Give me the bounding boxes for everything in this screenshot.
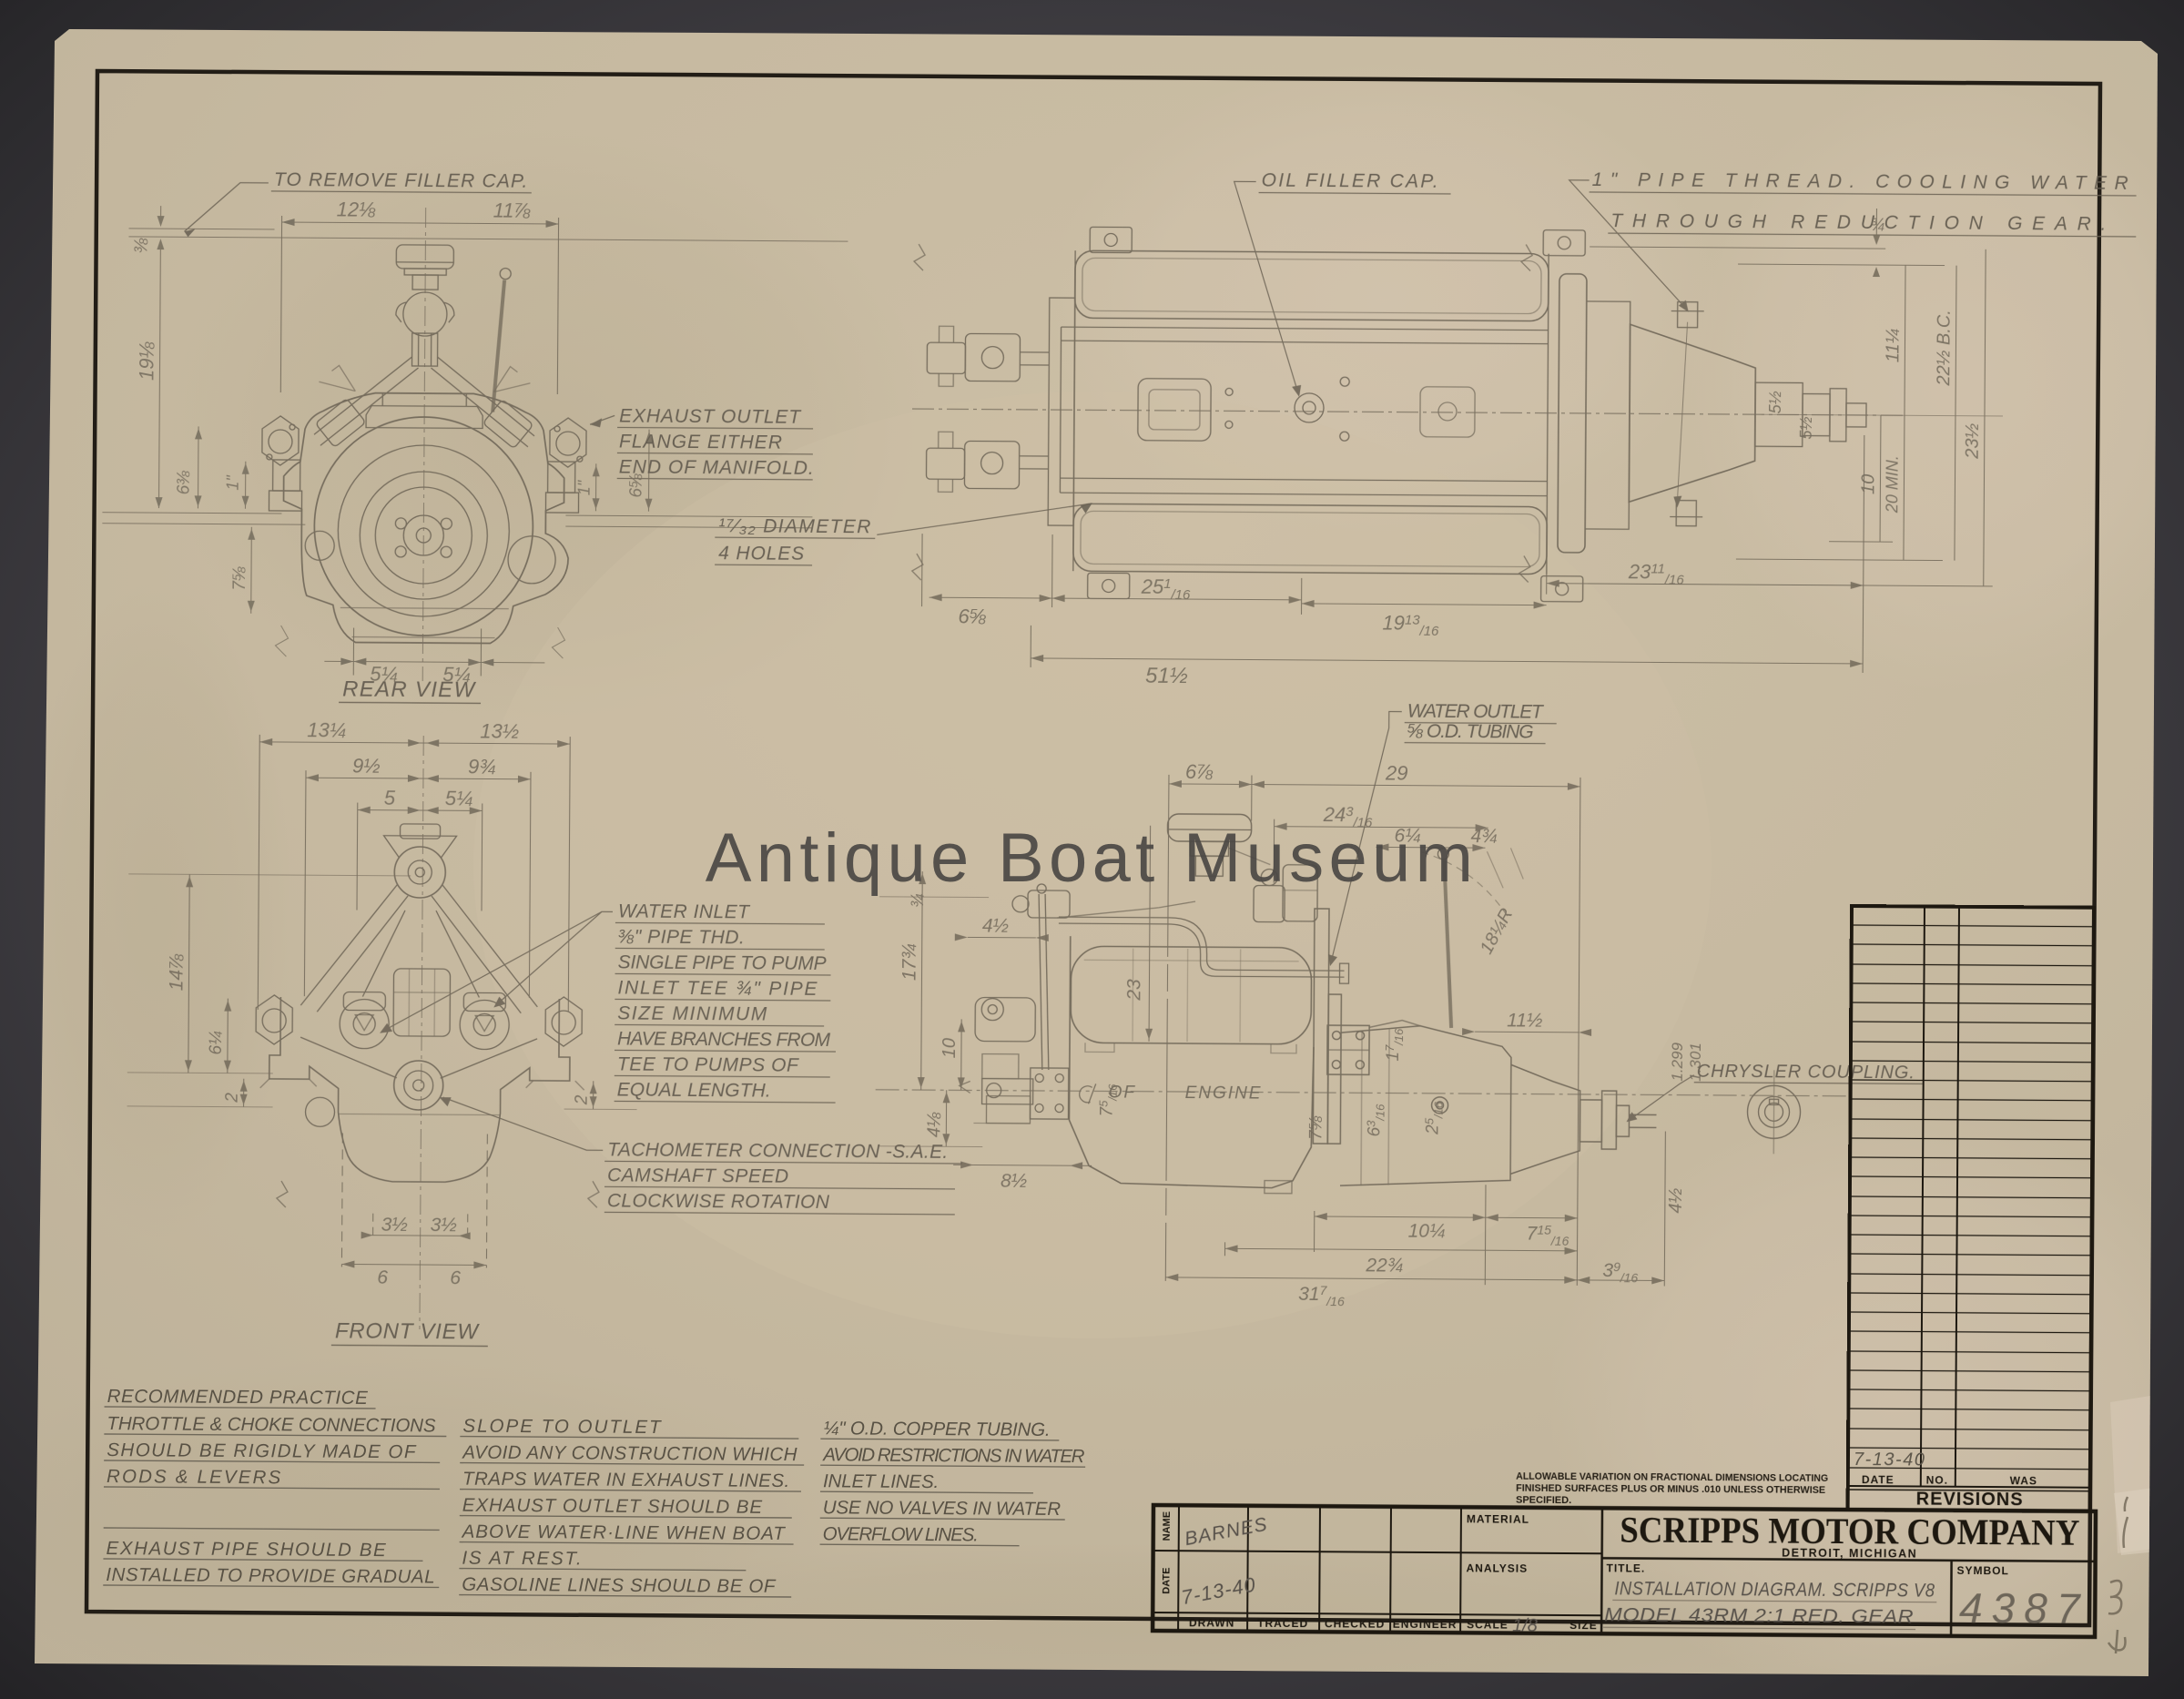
svg-text:ABOVE WATER·LINE WHEN BOAT: ABOVE WATER·LINE WHEN BOAT: [461, 1521, 787, 1544]
svg-text:9½: 9½: [352, 755, 381, 778]
svg-text:REVISIONS: REVISIONS: [1916, 1489, 2024, 1510]
svg-text:¼" O.D. COPPER TUBING.: ¼" O.D. COPPER TUBING.: [823, 1418, 1051, 1440]
svg-text:INSTALLED TO PROVIDE GRADUAL: INSTALLED TO PROVIDE GRADUAL: [106, 1564, 435, 1587]
svg-text:1.299: 1.299: [1669, 1042, 1686, 1081]
svg-text:23: 23: [1123, 979, 1144, 1002]
svg-text:DRAWN: DRAWN: [1189, 1616, 1234, 1629]
svg-text:2: 2: [573, 1094, 592, 1105]
svg-text:DATE: DATE: [1862, 1473, 1894, 1486]
svg-text:RECOMMENDED PRACTICE: RECOMMENDED PRACTICE: [107, 1386, 369, 1409]
svg-text:3½: 3½: [381, 1215, 408, 1236]
svg-text:EXHAUST PIPE SHOULD BE: EXHAUST PIPE SHOULD BE: [106, 1538, 386, 1561]
svg-text:SINGLE PIPE TO PUMP: SINGLE PIPE TO PUMP: [618, 951, 828, 974]
svg-text:SCALE: SCALE: [1467, 1618, 1508, 1631]
svg-text:TACHOMETER CONNECTION -S.A.E.: TACHOMETER CONNECTION -S.A.E.: [607, 1139, 949, 1162]
svg-text:INSTALLATION DIAGRAM. SCRIPP: INSTALLATION DIAGRAM. SCRIPPS V8: [1614, 1578, 1935, 1601]
svg-text:INLET TEE ¾" PIPE: INLET TEE ¾" PIPE: [617, 977, 818, 999]
svg-text:MODEL 43RM 2:1 RED. GEAR: MODEL 43RM 2:1 RED. GEAR: [1604, 1604, 1914, 1627]
svg-text:CLOCKWISE ROTATION: CLOCKWISE ROTATION: [607, 1190, 830, 1213]
svg-text:2: 2: [223, 1093, 242, 1104]
svg-text:5: 5: [384, 787, 396, 809]
svg-text:22¾: 22¾: [1365, 1255, 1403, 1276]
svg-text:11½: 11½: [1507, 1010, 1542, 1031]
svg-text:5¼: 5¼: [445, 787, 473, 809]
svg-text:HAVE BRANCHES FROM: HAVE BRANCHES FROM: [617, 1028, 831, 1051]
svg-text:13¼: 13¼: [307, 718, 346, 741]
svg-text:11⅞: 11⅞: [493, 199, 531, 222]
svg-text:10: 10: [940, 1038, 960, 1058]
svg-text:3½: 3½: [431, 1215, 457, 1236]
svg-text:REAR VIEW: REAR VIEW: [342, 677, 477, 702]
svg-text:4387: 4387: [1959, 1584, 2089, 1633]
svg-text:12⅛: 12⅛: [337, 198, 377, 220]
svg-text:RODS & LEVERS: RODS & LEVERS: [107, 1466, 281, 1488]
svg-text:20 MIN.: 20 MIN.: [1883, 455, 1901, 514]
svg-text:11¼: 11¼: [1883, 329, 1903, 363]
svg-text:FRONT VIEW: FRONT VIEW: [335, 1318, 481, 1344]
svg-text:1": 1": [224, 474, 242, 491]
svg-text:TO REMOVE FILLER CAP.: TO REMOVE FILLER CAP.: [274, 169, 529, 192]
svg-text:SPECIFIED.: SPECIFIED.: [1516, 1495, 1571, 1506]
svg-text:DATE: DATE: [1161, 1567, 1172, 1593]
svg-text:TEE TO PUMPS OF: TEE TO PUMPS OF: [617, 1053, 799, 1075]
svg-text:17¾: 17¾: [899, 943, 919, 981]
svg-text:ANALYSIS: ANALYSIS: [1467, 1562, 1529, 1574]
svg-text:NO.: NO.: [1926, 1474, 1948, 1487]
svg-text:4 HOLES: 4 HOLES: [718, 543, 805, 565]
svg-text:ENGINE: ENGINE: [1185, 1083, 1263, 1104]
svg-text:14⅞: 14⅞: [166, 953, 187, 992]
svg-text:⅜" PIPE THD.: ⅜" PIPE THD.: [618, 926, 746, 948]
svg-text:29: 29: [1385, 761, 1408, 784]
svg-text:OVERFLOW LINES.: OVERFLOW LINES.: [823, 1523, 980, 1545]
svg-text:1.301: 1.301: [1687, 1043, 1704, 1082]
svg-text:AVOID RESTRICTIONS IN WATER: AVOID RESTRICTIONS IN WATER: [821, 1444, 1085, 1467]
svg-text:⅝ O.D. TUBING: ⅝ O.D. TUBING: [1407, 721, 1535, 743]
svg-text:WATER INLET: WATER INLET: [618, 900, 751, 922]
svg-text:THROTTLE & CHOKE CONNECTIONS: THROTTLE & CHOKE CONNECTIONS: [107, 1413, 436, 1436]
svg-text:23½: 23½: [1963, 422, 1983, 459]
svg-text:⅜: ⅜: [131, 238, 151, 253]
svg-text:USE NO VALVES IN WATER: USE NO VALVES IN WATER: [823, 1497, 1062, 1520]
svg-text:TRACED: TRACED: [1257, 1617, 1308, 1630]
svg-text:END OF MANIFOLD.: END OF MANIFOLD.: [619, 456, 815, 478]
svg-text:WAS: WAS: [2010, 1474, 2037, 1487]
svg-text:¹⁷⁄₃₂ DIAMETER: ¹⁷⁄₃₂ DIAMETER: [718, 515, 871, 537]
svg-text:ENGINEER: ENGINEER: [1393, 1618, 1458, 1631]
svg-text:8½: 8½: [1001, 1171, 1027, 1192]
svg-text:4½: 4½: [982, 916, 1009, 937]
svg-text:DETROIT, MICHIGAN: DETROIT, MICHIGAN: [1782, 1547, 1917, 1561]
svg-text:FINISHED SURFACES PLUS OR MINU: FINISHED SURFACES PLUS OR MINUS .010 UNL…: [1516, 1483, 1825, 1496]
svg-text:CAMSHAFT SPEED: CAMSHAFT SPEED: [607, 1165, 789, 1186]
svg-text:6⅞: 6⅞: [1185, 760, 1214, 783]
svg-text:SHOULD BE RIGIDLY MADE OF: SHOULD BE RIGIDLY MADE OF: [107, 1440, 417, 1462]
svg-text:4⅛: 4⅛: [924, 1112, 944, 1137]
svg-text:7⅝: 7⅝: [230, 566, 249, 591]
svg-text:NAME: NAME: [1162, 1511, 1173, 1541]
svg-text:CHECKED: CHECKED: [1325, 1617, 1385, 1630]
svg-text:FLANGE EITHER: FLANGE EITHER: [619, 431, 783, 453]
svg-text:EQUAL LENGTH.: EQUAL LENGTH.: [617, 1079, 772, 1101]
svg-text:SYMBOL: SYMBOL: [1956, 1564, 2008, 1577]
svg-text:AVOID ANY CONSTRUCTION WHIC: AVOID ANY CONSTRUCTION WHICH: [461, 1442, 797, 1465]
svg-text:6⅜: 6⅜: [175, 471, 194, 495]
svg-text:9¾: 9¾: [468, 755, 496, 778]
svg-text:GASOLINE LINES SHOULD BE O: GASOLINE LINES SHOULD BE OF: [462, 1574, 777, 1597]
svg-text:OIL FILLER CAP.: OIL FILLER CAP.: [1262, 170, 1439, 192]
svg-text:SIZE: SIZE: [1569, 1619, 1598, 1632]
svg-text:7-13-40: 7-13-40: [1854, 1450, 1926, 1470]
svg-text:SIZE MINIMUM: SIZE MINIMUM: [617, 1002, 767, 1024]
svg-text:10: 10: [1858, 474, 1878, 494]
svg-text:51½: 51½: [1145, 664, 1188, 688]
svg-text:7⅝: 7⅝: [1306, 1115, 1326, 1140]
svg-text:Antique Boat Museum: Antique Boat Museum: [706, 819, 1478, 897]
svg-text:1/8: 1/8: [1512, 1616, 1538, 1636]
svg-text:13½: 13½: [480, 719, 519, 742]
svg-text:¾: ¾: [1870, 216, 1884, 235]
svg-text:TITLE.: TITLE.: [1607, 1562, 1646, 1574]
svg-text:22½ B.C.: 22½ B.C.: [1934, 310, 1955, 387]
svg-text:4½: 4½: [1666, 1187, 1686, 1213]
svg-text:SLOPE TO OUTLET: SLOPE TO OUTLET: [462, 1416, 662, 1438]
svg-text:5½: 5½: [1797, 416, 1815, 439]
svg-text:5½: 5½: [1766, 391, 1784, 413]
svg-text:MATERIAL: MATERIAL: [1467, 1512, 1529, 1525]
svg-text:10¼: 10¼: [1408, 1221, 1446, 1242]
svg-text:EXHAUST OUTLET: EXHAUST OUTLET: [619, 405, 802, 427]
svg-text:6⅝: 6⅝: [958, 605, 986, 627]
svg-text:6: 6: [450, 1267, 461, 1288]
svg-text:WATER OUTLET: WATER OUTLET: [1407, 701, 1545, 723]
svg-text:6¼: 6¼: [207, 1031, 226, 1055]
svg-text:TRAPS WATER IN EXHAUST LINES: TRAPS WATER IN EXHAUST LINES.: [462, 1469, 790, 1491]
svg-text:19⅛: 19⅛: [135, 341, 157, 381]
svg-text:ALLOWABLE VARIATION ON FRACTIO: ALLOWABLE VARIATION ON FRACTIONAL DIMENS…: [1516, 1471, 1828, 1484]
svg-text:6: 6: [377, 1267, 388, 1288]
svg-text:INLET LINES.: INLET LINES.: [823, 1470, 940, 1492]
svg-text:EXHAUST OUTLET SHOULD BE: EXHAUST OUTLET SHOULD BE: [462, 1495, 763, 1518]
svg-text:IS AT REST.: IS AT REST.: [462, 1548, 582, 1570]
